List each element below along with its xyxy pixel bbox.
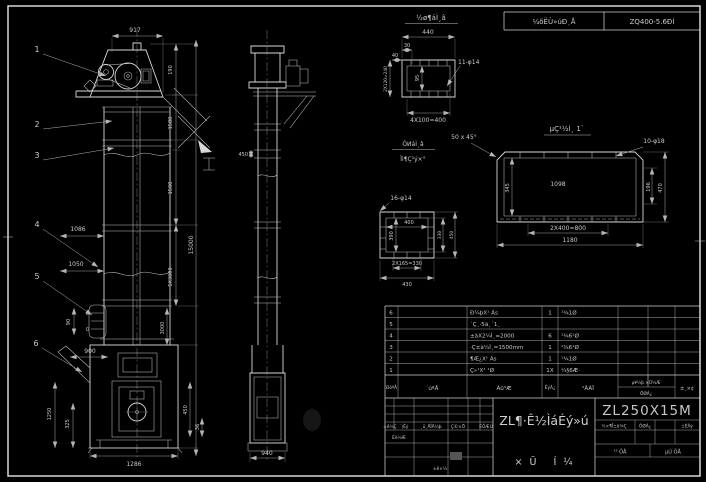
row5-no: 5 — [389, 322, 393, 328]
sheet-count-label: ¹² ÕÅ — [614, 449, 628, 456]
dim-2x165: 2X165=330 — [392, 261, 422, 267]
drawing-type: ×Ü Í¼ — [515, 456, 580, 468]
row2-no: 2 — [389, 357, 393, 363]
dim-450-boot: 450 — [183, 405, 189, 415]
row4-name: ±àX2¼Ì¸=2000 — [470, 333, 515, 340]
detail-top-dimensions: 440 30 40 2X120=240 95 11-φ14 4X100=400 — [383, 29, 480, 124]
dim-440: 440 — [422, 29, 434, 36]
row6-qty: 1 — [548, 311, 552, 317]
table-row: 1 Ç»¹X¹ ¹Ø 1X ¼§6Æ· — [389, 367, 580, 374]
dim-1098: 1098 — [550, 181, 565, 188]
dim-95: 95 — [415, 75, 421, 81]
balloon-5: 5 — [34, 272, 39, 281]
balloon-6: 6 — [33, 339, 38, 348]
dim-450-side: 450 — [238, 152, 248, 158]
dim-1286: 1286 — [126, 461, 141, 468]
row1-no: 1 — [389, 368, 393, 374]
dim-330: 330 — [437, 231, 443, 239]
dim-5x3000: 5X3000 — [168, 267, 174, 286]
row1-qty: 1X — [546, 368, 554, 374]
dim-11-holes: 11-φ14 — [458, 59, 480, 66]
product-title: ZL¶·Ê½ÌáÉý»ú — [499, 413, 588, 428]
dim-325: 325 — [65, 419, 71, 429]
drawing-frame — [3, 6, 705, 476]
rev-standard-label: ±ê×¼ — [433, 465, 448, 472]
dim-15000: 15000 — [188, 235, 195, 254]
front-view: 1 2 3 4 5 6 917 190 1580 1500 5X3000 — [33, 27, 215, 468]
sheet-number-label: µÚ ÕÅ — [665, 449, 681, 456]
rev-label-3: ¸ü¸ÄÎÄ¼þ — [420, 423, 441, 430]
row6-name: Ð¼þX¹ Ás — [470, 310, 498, 317]
header-bar: ¼õËÙ»úÐͺÅ ZQ400-5.6ÐÍ — [504, 12, 700, 30]
detail-square-title2: Ïì¶Ç¹ý×° — [400, 156, 425, 163]
row6-no: 6 — [389, 311, 393, 317]
dim-190: 190 — [168, 65, 174, 75]
dim-2x120: 2X120=240 — [383, 66, 389, 92]
table-row: 3 ·Ç±à¼Ì¸=1500mm 1 ¹¾6¹Ø — [389, 344, 579, 351]
dim-36: 36 — [195, 424, 201, 430]
dim-940: 940 — [261, 450, 273, 457]
balloon-2: 2 — [34, 120, 39, 129]
header-spec-label: ¼õËÙ»úÐͺÅ — [532, 17, 575, 26]
row4-no: 4 — [389, 334, 393, 340]
detail-long-frame: µÇ¹½Ì¸ 1` 50 x 45° 10-φ18 1098 345 196 4… — [451, 124, 669, 248]
row2-qty: 1 — [548, 357, 552, 363]
dim-90: 90 — [66, 319, 72, 325]
balloon-3: 3 — [34, 151, 39, 160]
dim-1180: 1180 — [562, 237, 577, 244]
dim-900: 900 — [84, 348, 96, 355]
model-number: ZL250X15M — [602, 403, 692, 419]
detail-square-dimensions: 16-φ14 400 390 330 450 2X165=330 430 — [380, 195, 458, 288]
dim-345: 345 — [505, 183, 511, 193]
flow-arrow — [198, 140, 212, 153]
side-view: 450 940 — [238, 30, 321, 462]
dim-3000: 3000 — [160, 322, 166, 335]
row4-qty: 6 — [548, 334, 552, 340]
dim-470: 470 — [658, 183, 664, 193]
dim-2x400: 2X400=800 — [550, 225, 586, 232]
col-mat: ²ÄÁÏ — [582, 385, 594, 392]
stamp-box — [450, 452, 462, 460]
row3-no: 3 — [389, 345, 393, 351]
smudge-artifact — [303, 409, 321, 431]
table-row: 5 ´Ç¸·5ã¸´1¸ — [389, 322, 500, 328]
dim-390: 390 — [389, 231, 395, 241]
detail-long-dimensions: 50 x 45° 10-φ18 1098 345 196 470 2X400=8… — [451, 134, 669, 248]
dim-196: 196 — [646, 182, 652, 192]
col-qty: ÊýÁ¿ — [545, 383, 555, 391]
row2-name: ¶Æ¿X¹ Ás — [470, 356, 497, 363]
detail-flange-plate: ½ø¶áÌ¸â 440 30 40 2X120=240 95 11-φ14 4X… — [383, 13, 480, 124]
row3-qty: 1 — [548, 345, 552, 351]
front-view-dimensions: 917 190 1580 1500 5X3000 3000 15000 1086… — [47, 27, 202, 468]
dim-450-sq: 450 — [449, 231, 455, 239]
title-block: ±ê¼Ç ´¦Êý ¸ü¸ÄÎÄ¼þ Ç©×Ö ÈÕÆÚ Éè¼Æ ±ê×¼ Z… — [383, 398, 700, 476]
dim-1500: 1500 — [168, 182, 174, 195]
side-view-geometry — [248, 46, 316, 451]
cad-drawing-canvas: ¼õËÙ»úÐͺÅ ZQ400-5.6ÐÍ — [0, 0, 706, 482]
col-weight-top: µ¥¼þ ×Ü¼Æ — [632, 379, 661, 386]
dim-16-holes: 16-φ14 — [390, 195, 412, 202]
dim-1086: 1086 — [70, 226, 85, 233]
col-no: ÐòºÅ — [386, 384, 397, 391]
detail-long-geometry — [497, 152, 643, 222]
detail-long-title: µÇ¹½Ì¸ 1` — [550, 124, 585, 133]
col-note: ±¸×¢ — [680, 386, 694, 392]
spec-label-2: ÖØÁ¿ — [639, 423, 651, 430]
rev-label-2: ´¦Êý — [400, 422, 409, 430]
col-weight-bottom: ÖØÁ¿ — [640, 390, 652, 397]
spec-label-3: ±ÈÀý — [681, 422, 693, 430]
col-code: ´úºÅ — [426, 385, 439, 392]
dim-4x100: 4X100=400 — [410, 117, 446, 124]
header-model-label: ZQ400-5.6ÐÍ — [630, 17, 675, 26]
dim-917: 917 — [129, 27, 141, 34]
dim-1250: 1250 — [47, 408, 53, 421]
rev-label-4: Ç©×Ö — [451, 423, 466, 430]
detail-top-title: ½ø¶áÌ¸â — [416, 13, 446, 22]
row1-mat: ¼§6Æ· — [561, 368, 580, 374]
dim-1050: 1050 — [68, 261, 83, 268]
row3-name: ·Ç±à¼Ì¸=1500mm — [470, 344, 524, 351]
row2-mat: ¹¾1Ø — [561, 356, 577, 363]
balloon-4: 4 — [34, 220, 39, 229]
rev-label-1: ±ê¼Ç — [383, 423, 396, 430]
row6-mat: ¹¾1Ø — [561, 310, 577, 317]
rev-design-label: Éè¼Æ — [392, 433, 406, 441]
dim-1580: 1580 — [168, 117, 174, 130]
col-name: Ãû³Æ — [496, 385, 512, 392]
spec-label-1: ½×¶Î±ê¼Ç — [601, 423, 626, 430]
row5-name: ´Ç¸·5ã¸´1¸ — [470, 322, 500, 328]
rev-label-5: ÈÕÆÚ — [479, 422, 492, 430]
row3-mat: ¹¾6¹Ø — [561, 344, 579, 351]
inspection-door — [89, 305, 106, 338]
detail-top-geometry — [402, 60, 455, 97]
balloon-1: 1 — [34, 45, 39, 54]
dim-10-holes: 10-φ18 — [643, 138, 665, 145]
dim-430: 430 — [402, 282, 412, 288]
table-row: 2 ¶Æ¿X¹ Ás 1 ¹¾1Ø — [389, 356, 577, 363]
parts-table: ÐòºÅ ´úºÅ Ãû³Æ ÊýÁ¿ ²ÄÁÏ µ¥¼þ ×Ü¼Æ ÖØÁ¿ … — [385, 306, 700, 476]
detail-square-title1: ÓͶáÌ¸â — [402, 141, 424, 148]
detail-square-flange: ÓͶáÌ¸â Ïì¶Ç¹ý×° 16-φ14 400 390 330 450 2… — [380, 141, 458, 288]
table-row: 4 ±àX2¼Ì¸=2000 6 ¹¾6¹Ø — [389, 333, 579, 340]
row1-name: Ç»¹X¹ ¹Ø — [470, 367, 495, 374]
dim-30: 30 — [404, 43, 410, 49]
dim-400: 400 — [404, 220, 414, 226]
dim-40: 40 — [392, 53, 398, 59]
note-chamfer: 50 x 45° — [451, 134, 477, 141]
table-row: 6 Ð¼þX¹ Ás 1 ¹¾1Ø — [389, 310, 577, 317]
row4-mat: ¹¾6¹Ø — [561, 333, 579, 340]
